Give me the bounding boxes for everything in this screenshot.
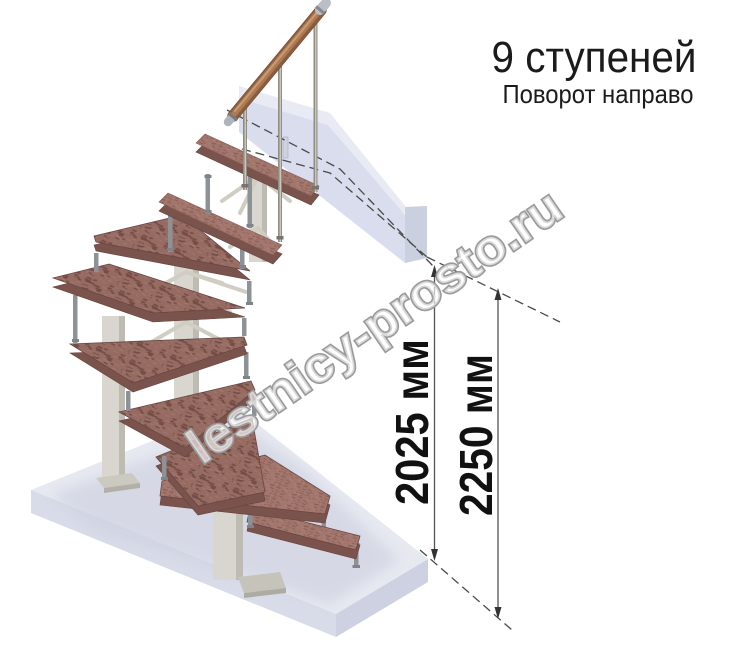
svg-text:Поворот направо: Поворот направо [503, 79, 694, 109]
svg-text:2250 мм: 2250 мм [450, 354, 502, 516]
svg-text:9 ступеней: 9 ступеней [492, 33, 697, 82]
svg-text:2025 мм: 2025 мм [386, 339, 438, 505]
